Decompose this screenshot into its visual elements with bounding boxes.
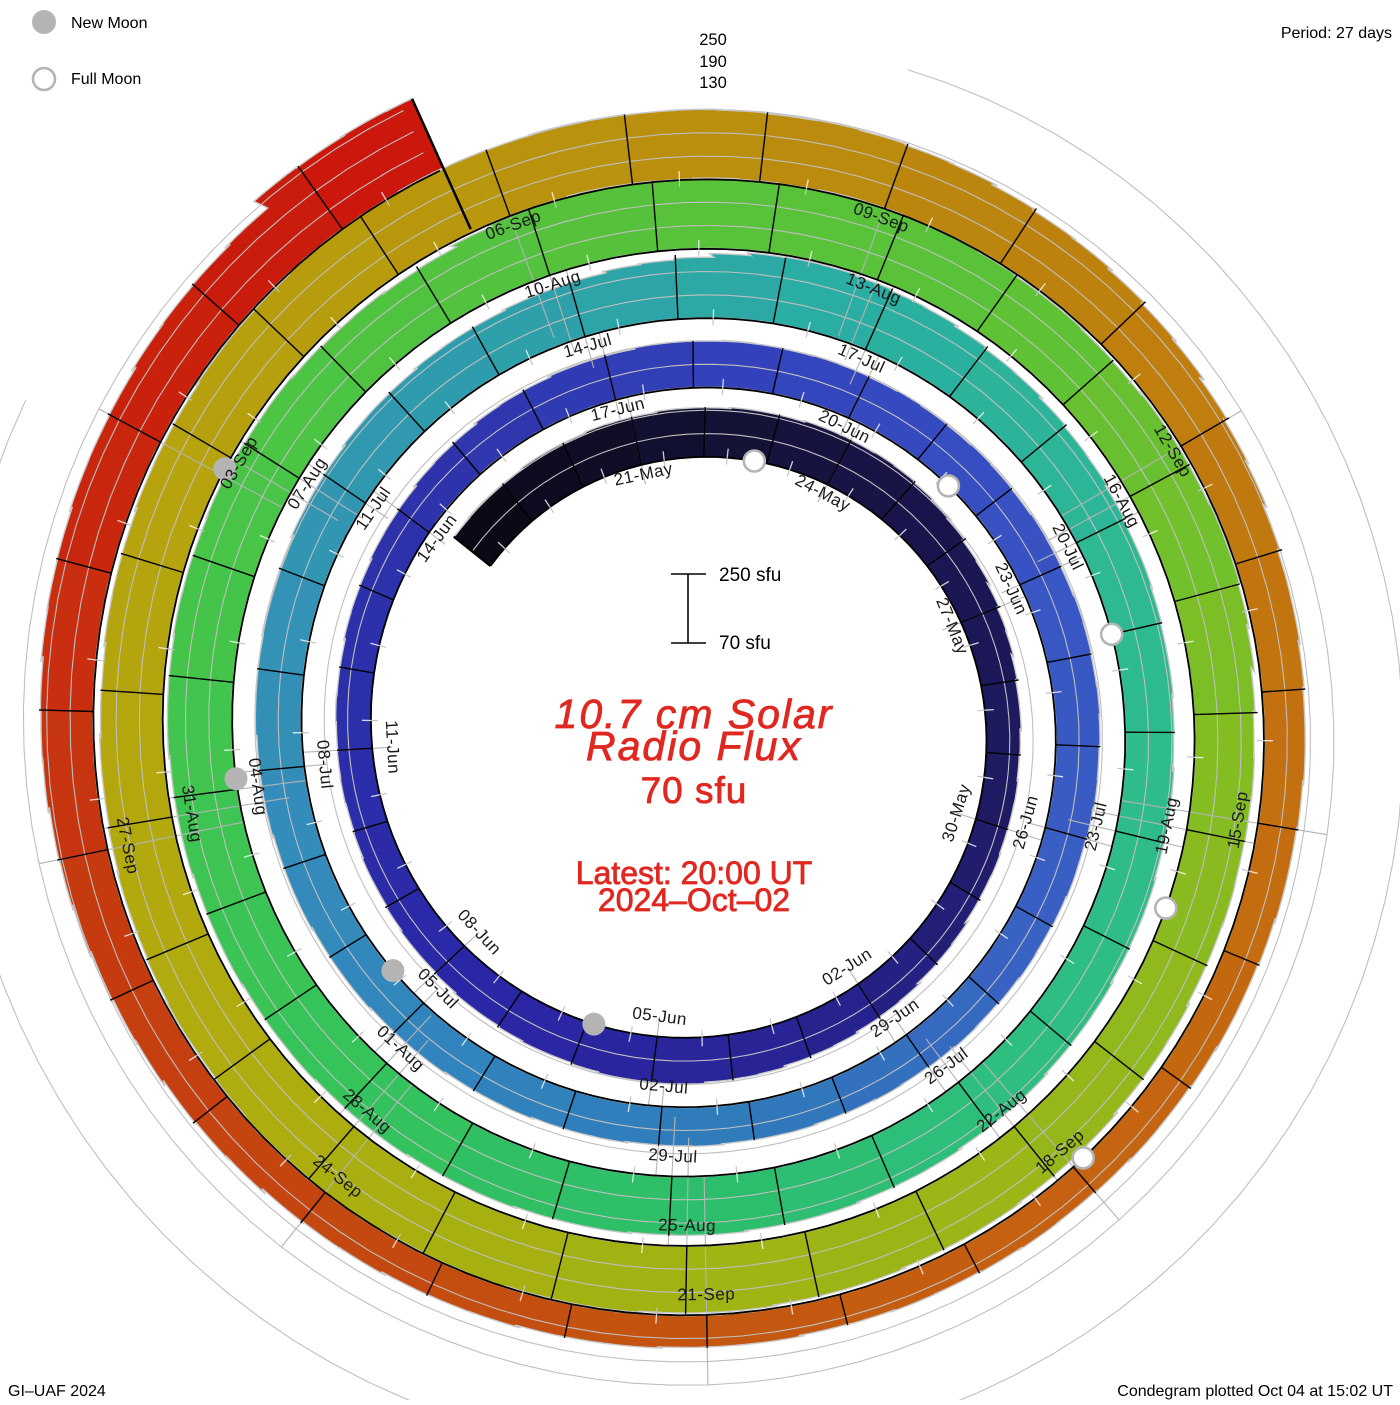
svg-text:130: 130 — [699, 74, 727, 92]
svg-text:2024–Oct–02: 2024–Oct–02 — [598, 882, 790, 918]
svg-text:70 sfu: 70 sfu — [641, 770, 748, 811]
svg-text:190: 190 — [699, 53, 727, 71]
svg-text:25-Aug: 25-Aug — [658, 1215, 716, 1235]
svg-text:Period: 27 days: Period: 27 days — [1281, 25, 1392, 42]
svg-text:Condegram plotted Oct 04 at 15: Condegram plotted Oct 04 at 15:02 UT — [1117, 1383, 1393, 1400]
svg-text:29-Jul: 29-Jul — [648, 1145, 698, 1167]
svg-text:GI–UAF 2024: GI–UAF 2024 — [8, 1383, 106, 1400]
svg-text:Radio Flux: Radio Flux — [586, 723, 802, 769]
svg-text:250: 250 — [699, 31, 727, 49]
svg-text:New Moon: New Moon — [71, 15, 147, 32]
svg-text:21-Sep: 21-Sep — [677, 1284, 735, 1304]
svg-text:250 sfu: 250 sfu — [719, 565, 781, 586]
svg-text:11-Jun: 11-Jun — [382, 720, 404, 775]
svg-text:Full Moon: Full Moon — [71, 71, 141, 88]
svg-text:70 sfu: 70 sfu — [719, 633, 771, 654]
